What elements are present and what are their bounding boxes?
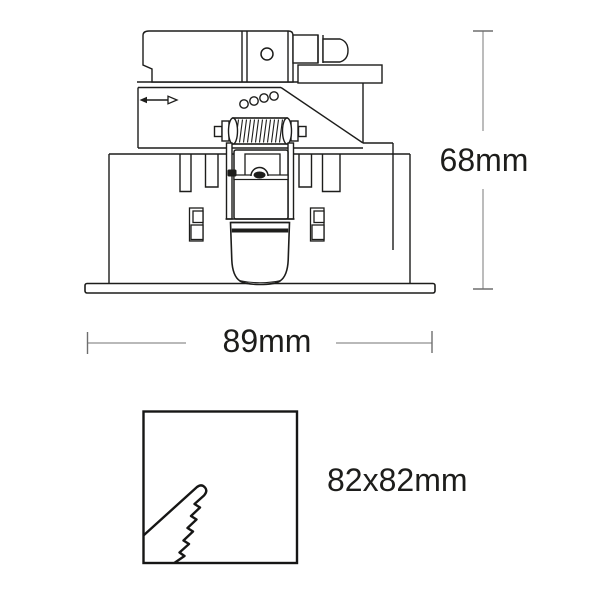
- spring-end-cap-left: [229, 118, 238, 144]
- spring-end-cap-right: [283, 118, 292, 144]
- retention-clip-slot-right: [311, 208, 325, 241]
- diagram-canvas: 68mm 89mm 82x82mm: [0, 0, 600, 600]
- lamp-holder: [227, 143, 294, 219]
- rim-slot: [299, 154, 312, 187]
- spring-tab-right: [299, 127, 307, 137]
- terminal-screw-icon: [261, 48, 273, 60]
- torsion-spring: [215, 118, 307, 144]
- fixture-side-view-drawing: [85, 31, 435, 293]
- bracket-arm-left: [227, 143, 233, 219]
- cutout-square: [144, 412, 298, 564]
- holder-arch-shadow: [254, 172, 266, 179]
- spring-tab-left: [215, 127, 223, 137]
- terminal-box: [143, 31, 382, 83]
- vent-holes: [240, 92, 278, 108]
- height-dimension: 68mm: [440, 31, 529, 289]
- retention-clip-slot-left: [190, 208, 204, 241]
- rim-slot: [206, 154, 219, 187]
- rim-slot: [323, 154, 341, 192]
- bracket-arm-right: [288, 143, 294, 219]
- width-dimension-label: 89mm: [223, 323, 312, 359]
- lamp-dark-band: [232, 229, 288, 233]
- adjustment-arrow-icon: [140, 96, 178, 104]
- cutout-diagram: 82x82mm: [144, 412, 468, 564]
- downlight-dimension-diagram: 68mm 89mm 82x82mm: [0, 0, 600, 600]
- spring-wire-end: [228, 170, 237, 177]
- gu10-lamp: [226, 219, 295, 285]
- rim-slot: [180, 154, 191, 192]
- cable-connector: [293, 35, 348, 63]
- width-dimension: 89mm: [88, 323, 433, 359]
- cutout-dimension-label: 82x82mm: [327, 462, 468, 498]
- height-dimension-label: 68mm: [440, 142, 529, 178]
- saw-cut-icon: [144, 485, 206, 562]
- mounting-bracket-plate: [298, 65, 382, 83]
